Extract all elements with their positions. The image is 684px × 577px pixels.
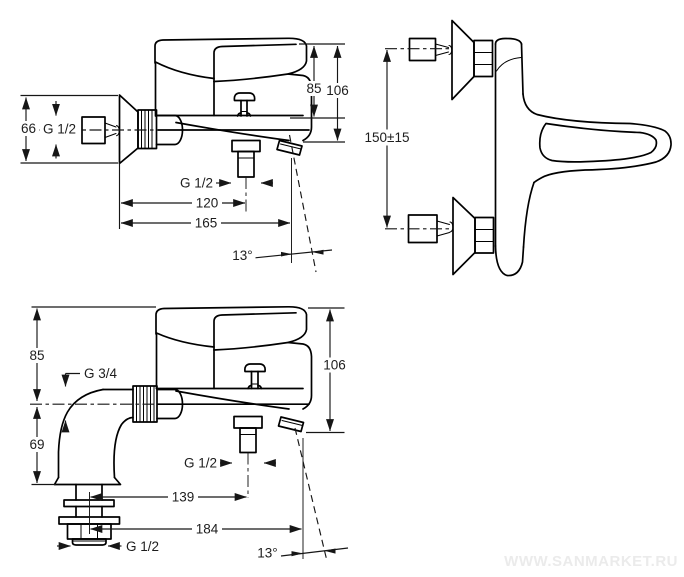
inlet-elbow-leg bbox=[59, 390, 104, 478]
dim-label-120: 120 bbox=[192, 196, 222, 211]
svg-text:13°: 13° bbox=[257, 546, 277, 561]
svg-text:85: 85 bbox=[29, 348, 44, 363]
spout-aerator bbox=[277, 141, 302, 156]
deck-mixer-dimensions bbox=[30, 307, 348, 559]
dim-label-106: 106 bbox=[323, 83, 352, 98]
svg-text:120: 120 bbox=[196, 196, 219, 211]
dim-label-inlet-thread: G 1/2 bbox=[40, 122, 79, 137]
svg-text:139: 139 bbox=[172, 490, 195, 505]
shower-outlet bbox=[232, 141, 260, 152]
dim-label-85: 85 bbox=[303, 81, 325, 96]
svg-text:G 1/2: G 1/2 bbox=[43, 122, 76, 137]
svg-text:G 3/4: G 3/4 bbox=[84, 366, 118, 381]
svg-text:G 1/2: G 1/2 bbox=[180, 176, 213, 191]
watermark: WWW.SANMARKET.RU bbox=[504, 553, 678, 570]
svg-text:G 1/2: G 1/2 bbox=[184, 456, 217, 471]
technical-drawing-page: 85 106 66 G 1/2 G 1/2 120 165 13° bbox=[0, 0, 684, 577]
deck-mixer-outline bbox=[55, 307, 312, 545]
svg-text:85: 85 bbox=[306, 81, 321, 96]
mount-thread bbox=[73, 539, 107, 545]
wall-mixer-dimensions bbox=[21, 44, 346, 272]
mixer-plan-view: 150±15 bbox=[359, 21, 671, 276]
deck-mounted-mixer-side-view: 85 69 G 3/4 106 G 1/2 139 184 13° bbox=[26, 307, 349, 561]
diverter-knob bbox=[234, 93, 254, 101]
dim-label-165: 165 bbox=[191, 216, 221, 231]
plan-outline bbox=[409, 21, 672, 276]
dim-label-angle: 13° bbox=[230, 248, 256, 263]
spout-aerator bbox=[279, 417, 304, 432]
dim-label-outlet-thread: G 1/2 bbox=[177, 176, 216, 191]
svg-text:13°: 13° bbox=[232, 248, 252, 263]
svg-text:106: 106 bbox=[323, 358, 346, 373]
mount-washer bbox=[64, 500, 114, 507]
svg-text:165: 165 bbox=[195, 216, 218, 231]
dim-label-139: 139 bbox=[168, 490, 198, 505]
union-nut bbox=[138, 110, 157, 149]
svg-text:69: 69 bbox=[29, 437, 44, 452]
wall-flange-cone bbox=[120, 95, 139, 164]
dim-label-85: 85 bbox=[26, 348, 48, 363]
svg-text:66: 66 bbox=[21, 121, 36, 136]
dim-label-inlet-spacing: 150±15 bbox=[359, 130, 415, 146]
svg-text:G 1/2: G 1/2 bbox=[126, 539, 159, 554]
wall-mounted-mixer-side-view: 85 106 66 G 1/2 G 1/2 120 165 13° bbox=[18, 38, 353, 272]
shower-outlet bbox=[234, 417, 262, 429]
svg-text:184: 184 bbox=[196, 522, 219, 537]
svg-text:106: 106 bbox=[326, 83, 349, 98]
dim-label-stem-thread: G 1/2 bbox=[123, 539, 162, 554]
wall-mixer-outline bbox=[82, 38, 312, 177]
dim-label-outlet-thread: G 1/2 bbox=[181, 456, 220, 471]
diverter-knob bbox=[245, 364, 265, 372]
dim-label-69: 69 bbox=[26, 437, 48, 452]
dim-label-106: 106 bbox=[320, 358, 349, 373]
dim-label-66: 66 bbox=[18, 121, 40, 136]
svg-text:150±15: 150±15 bbox=[365, 130, 410, 145]
dim-label-inlet-thread: G 3/4 bbox=[80, 366, 121, 381]
dim-label-184: 184 bbox=[192, 522, 222, 537]
dim-label-angle: 13° bbox=[255, 546, 281, 561]
bath-mixer-dimension-drawing: 85 106 66 G 1/2 G 1/2 120 165 13° bbox=[0, 0, 684, 577]
